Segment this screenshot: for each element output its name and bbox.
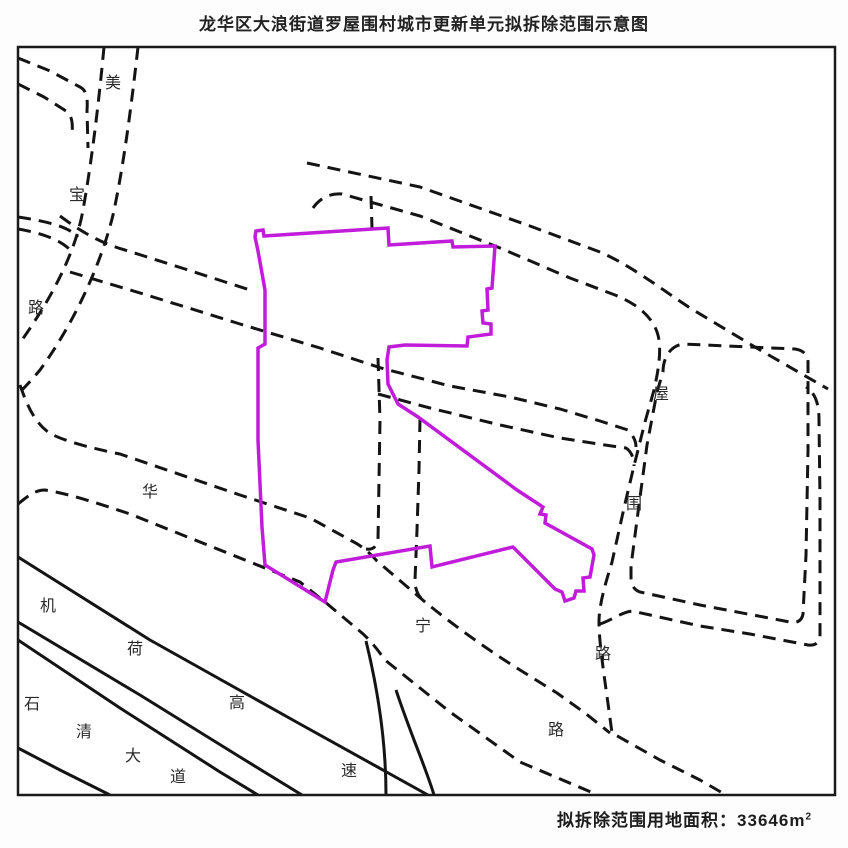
road-label-6: 机 xyxy=(40,599,56,615)
road-label-3: 华 xyxy=(142,485,158,501)
road-label-7: 荷 xyxy=(127,642,143,658)
demolition-scope-map xyxy=(0,0,848,848)
road-label-16: 路 xyxy=(595,647,611,663)
road-label-11: 清 xyxy=(76,725,92,741)
road-label-8: 高 xyxy=(229,696,245,712)
road-label-10: 石 xyxy=(24,697,40,713)
road-label-1: 宝 xyxy=(69,188,85,204)
road-label-15: 围 xyxy=(626,497,642,513)
map-background xyxy=(18,47,835,795)
road-label-4: 宁 xyxy=(415,619,431,635)
area-caption: 拟拆除范围用地面积：33646m2 xyxy=(0,806,812,831)
road-label-2: 路 xyxy=(28,301,44,317)
road-label-5: 路 xyxy=(548,723,564,739)
area-unit: m xyxy=(789,811,805,830)
road-label-12: 大 xyxy=(125,749,141,765)
road-label-13: 道 xyxy=(170,770,186,786)
road-label-0: 美 xyxy=(105,76,121,92)
area-unit-sup: 2 xyxy=(805,811,812,822)
area-value: 33646 xyxy=(737,811,789,830)
road-label-9: 速 xyxy=(341,764,357,780)
road-label-14: 屋 xyxy=(653,387,669,403)
area-caption-label: 拟拆除范围用地面积： xyxy=(557,811,737,830)
